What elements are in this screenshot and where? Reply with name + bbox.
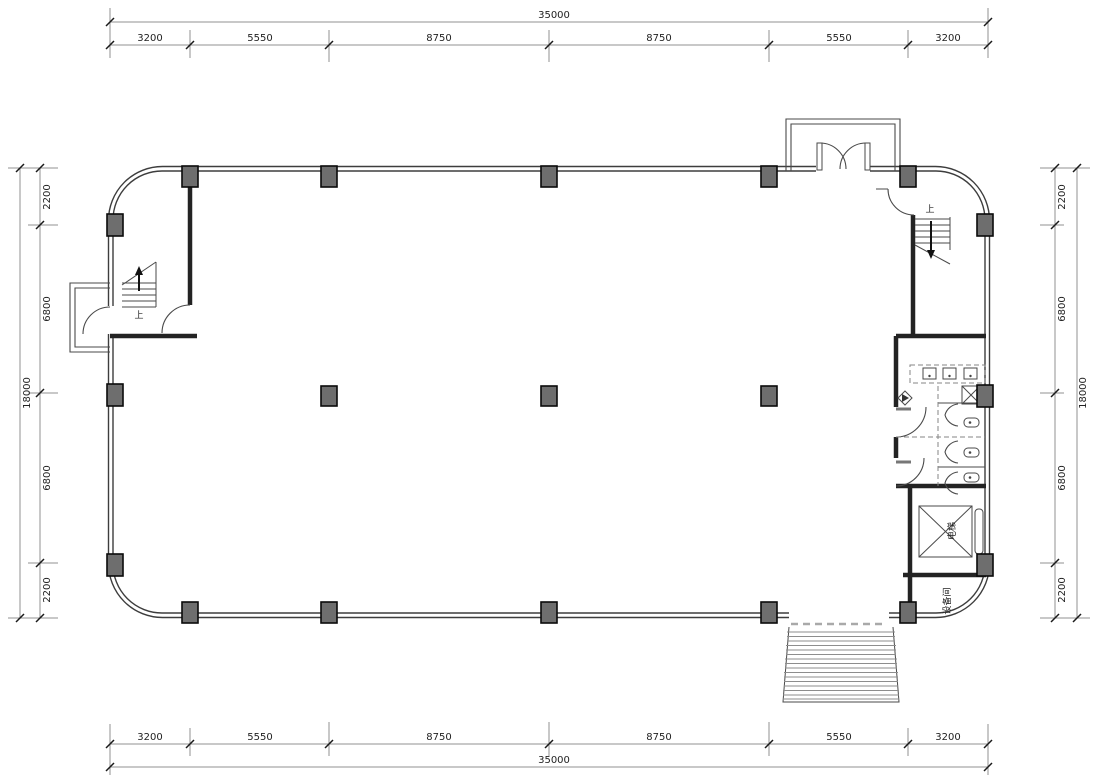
right-stair-treads [915, 217, 950, 264]
dim-right-seg-4: 2200 [1057, 577, 1068, 602]
dim-right-seg-3: 6800 [1057, 465, 1068, 490]
dim-left-seg-1: 2200 [42, 184, 53, 209]
right-stair-block: 上 [876, 189, 986, 336]
exterior-steps [783, 624, 899, 702]
dim-top-seg-5: 5550 [826, 33, 851, 44]
stair-up-label-right: 上 [925, 204, 934, 215]
dim-bottom-total: 35000 [538, 755, 570, 766]
dimension-left: 18000 2200 6800 6800 2200 [8, 164, 58, 622]
dim-top-seg-4: 8750 [646, 33, 671, 44]
dim-top-seg-6: 3200 [935, 33, 960, 44]
washbasin-counter [910, 365, 985, 383]
dim-bottom-seg-1: 3200 [137, 732, 162, 743]
dim-right-total: 18000 [1078, 377, 1089, 409]
dim-bottom-seg-5: 5550 [826, 732, 851, 743]
dim-top-seg-1: 3200 [137, 33, 162, 44]
elevator-label: 电梯 [946, 522, 958, 540]
dim-left-total: 18000 [22, 377, 33, 409]
left-stair-treads [122, 262, 156, 307]
room-label-bottom-right: 设备间 [941, 587, 953, 614]
dimension-right: 18000 2200 6800 6800 2200 [1040, 164, 1090, 622]
dim-top-total: 35000 [538, 10, 570, 21]
drawing-sheet: 35000 3200 5550 8750 8750 5550 3200 3500… [0, 0, 1104, 776]
dim-left-seg-4: 2200 [42, 577, 53, 602]
dim-bottom-seg-4: 8750 [646, 732, 671, 743]
dim-top-seg-3: 8750 [426, 33, 451, 44]
dim-bottom-seg-6: 3200 [935, 732, 960, 743]
dimension-bottom: 35000 3200 5550 8750 8750 5550 3200 [106, 722, 992, 775]
structural-columns [107, 166, 993, 623]
toilets [964, 418, 979, 482]
dim-bottom-seg-2: 5550 [247, 732, 272, 743]
dimension-top: 35000 3200 5550 8750 8750 5550 3200 [106, 8, 992, 62]
dim-top-seg-2: 5550 [247, 33, 272, 44]
dim-right-seg-2: 6800 [1057, 296, 1068, 321]
dim-left-seg-2: 6800 [42, 296, 53, 321]
dim-left-seg-3: 6800 [42, 465, 53, 490]
dim-right-seg-1: 2200 [1057, 184, 1068, 209]
floor-plan-drawing: 35000 3200 5550 8750 8750 5550 3200 3500… [0, 0, 1104, 776]
left-stair-block: 上 [110, 187, 197, 336]
dim-bottom-seg-3: 8750 [426, 732, 451, 743]
restroom-block [896, 336, 986, 494]
stall-doors [945, 404, 958, 494]
step-treads [783, 632, 899, 699]
stair-up-label-left: 上 [134, 310, 143, 321]
floor-drain-icon [898, 391, 912, 405]
